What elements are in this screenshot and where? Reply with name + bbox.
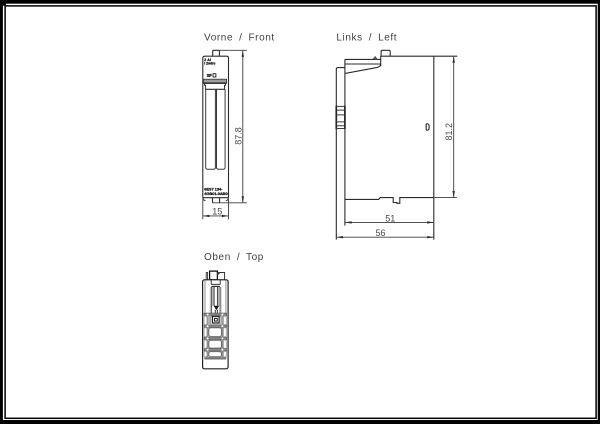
svg-text:I 2wire: I 2wire: [204, 62, 215, 66]
svg-text:87.8: 87.8: [234, 127, 244, 145]
svg-text:56: 56: [375, 228, 385, 238]
svg-text:4GB01-0AB0: 4GB01-0AB0: [204, 191, 228, 196]
svg-text:15: 15: [212, 207, 222, 217]
svg-text:81.2: 81.2: [444, 123, 454, 141]
svg-text:51: 51: [385, 213, 395, 223]
svg-text:SF: SF: [207, 73, 213, 78]
svg-text:Oben / Top: Oben / Top: [204, 252, 264, 263]
svg-text:Vorne / Front: Vorne / Front: [204, 32, 275, 43]
svg-text:Links / Left: Links / Left: [336, 32, 397, 43]
